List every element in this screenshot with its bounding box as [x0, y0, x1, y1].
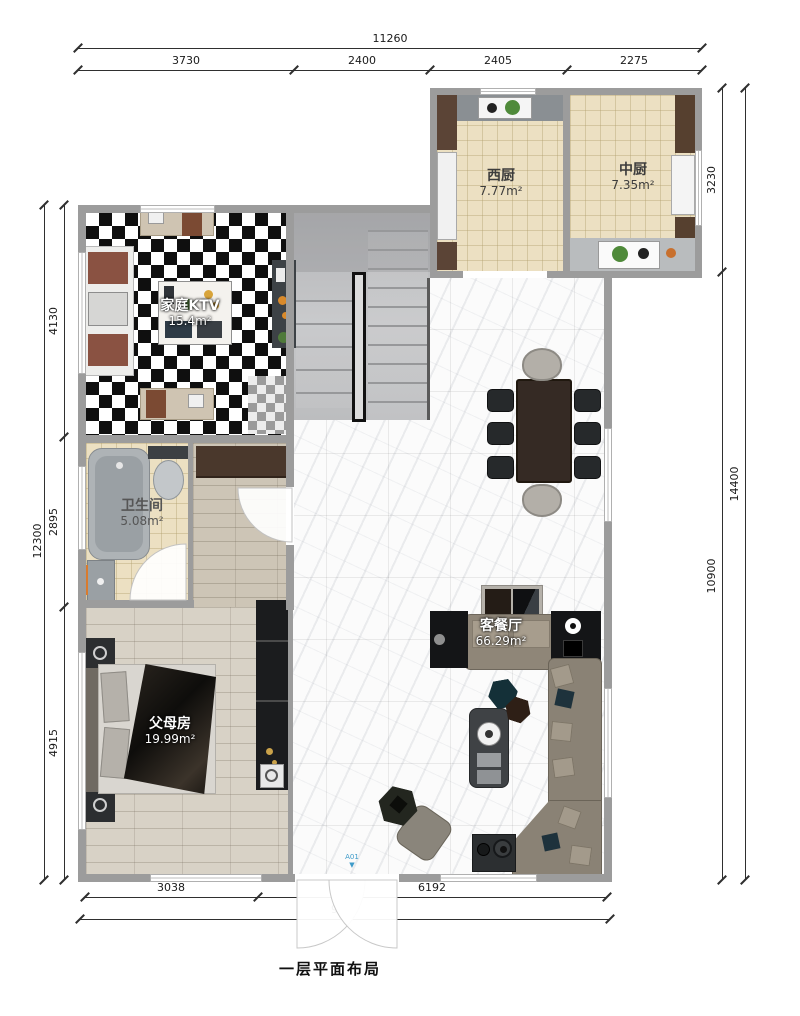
room-label-bathroom: 卫生间 5.08m²: [120, 498, 163, 528]
bathroom-door-swing: [130, 544, 186, 600]
parents-room-area: 19.99m²: [145, 732, 196, 746]
chinese-kitchen-name: 中厨: [611, 162, 654, 178]
floor-plan-page: 西厨 7.77m² 中厨 7.35m² 家庭KTV 15.4m² 卫生间 5.0…: [0, 0, 800, 1016]
entrance-door-marker: A01 ▼: [336, 853, 368, 869]
parents-room-name: 父母房: [145, 716, 196, 732]
room-label-parents-room: 父母房 19.99m²: [145, 716, 196, 746]
door-marker-label: A01: [345, 853, 359, 861]
family-ktv-area: 15.4m²: [160, 314, 219, 328]
family-ktv-name: 家庭KTV: [160, 298, 219, 314]
entrance-door-right-swing: [329, 880, 397, 948]
door-marker-arrow-icon: ▼: [349, 861, 354, 869]
west-kitchen-area: 7.77m²: [479, 184, 522, 198]
room-label-chinese-kitchen: 中厨 7.35m²: [611, 162, 654, 192]
chinese-kitchen-area: 7.35m²: [611, 178, 654, 192]
bathroom-name: 卫生间: [120, 498, 163, 514]
living-dining-name: 客餐厅: [476, 618, 527, 634]
west-kitchen-name: 西厨: [479, 168, 522, 184]
living-dining-area: 66.29m²: [476, 634, 527, 648]
room-label-living-dining: 客餐厅 66.29m²: [476, 618, 527, 648]
bathroom-area: 5.08m²: [120, 514, 163, 528]
hallway-door-swing: [238, 488, 292, 542]
room-label-west-kitchen: 西厨 7.77m²: [479, 168, 522, 198]
room-label-family-ktv: 家庭KTV 15.4m²: [160, 298, 219, 328]
